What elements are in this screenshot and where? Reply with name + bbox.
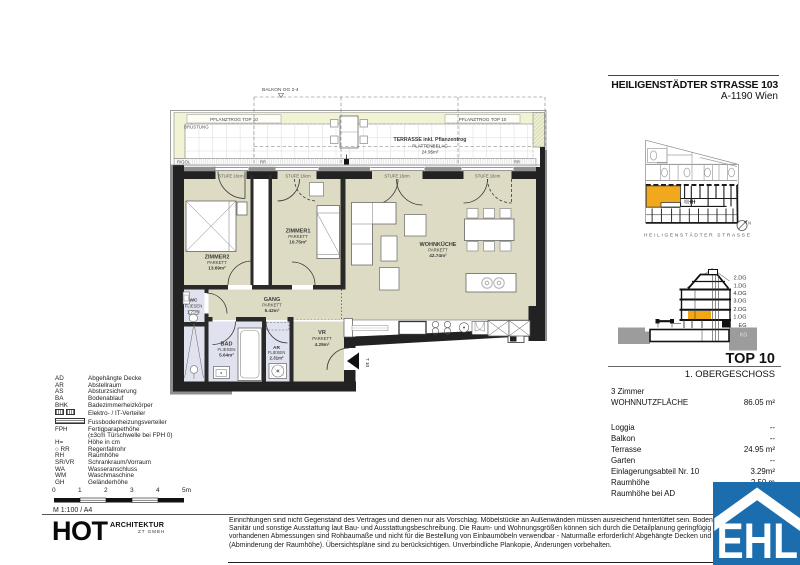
svg-text:4.OG: 4.OG (733, 291, 746, 297)
svg-text:4.29m²: 4.29m² (315, 342, 330, 347)
svg-text:RR: RR (514, 160, 520, 165)
svg-text:4: 4 (156, 487, 160, 494)
svg-text:PFLANZTROG TOP 10: PFLANZTROG TOP 10 (459, 117, 507, 122)
svg-text:STUFE 16cm: STUFE 16cm (475, 174, 501, 179)
svg-text:PARKETT: PARKETT (288, 234, 308, 239)
svg-text:EHL: EHL (716, 513, 797, 565)
svg-text:FLIESEN: FLIESEN (218, 347, 236, 352)
svg-text:5m: 5m (182, 487, 191, 494)
svg-text:3.OG: 3.OG (733, 299, 746, 305)
svg-text:RIGOL: RIGOL (177, 160, 191, 165)
svg-text:N: N (748, 221, 751, 226)
svg-text:T 10: T 10 (365, 358, 370, 368)
svg-text:FLIESEN: FLIESEN (185, 304, 202, 309)
svg-text:1.OG: 1.OG (733, 315, 746, 321)
svg-text:KG: KG (740, 333, 747, 339)
svg-text:STUFE 16cm: STUFE 16cm (384, 174, 410, 179)
svg-text:3: 3 (130, 487, 134, 494)
svg-text:2.31m²: 2.31m² (270, 356, 284, 361)
svg-text:PARKETT: PARKETT (207, 260, 227, 265)
svg-text:HEILIGENSTÄDTER STRASSE: HEILIGENSTÄDTER STRASSE (644, 232, 752, 239)
svg-text:42.74m²: 42.74m² (429, 253, 447, 258)
svg-text:PARKETT: PARKETT (428, 247, 448, 252)
svg-text:FLIESEN: FLIESEN (268, 350, 285, 355)
svg-text:5.64m²: 5.64m² (219, 352, 234, 357)
svg-text:PFLANZTROG TOP 10: PFLANZTROG TOP 10 (210, 117, 258, 122)
svg-text:2.DG: 2.DG (734, 276, 747, 282)
svg-text:PARKETT: PARKETT (262, 302, 282, 307)
svg-text:STUFE 16cm: STUFE 16cm (285, 174, 311, 179)
svg-text:PLATTENBELAG: PLATTENBELAG (412, 144, 448, 149)
svg-text:PARKETT: PARKETT (312, 336, 332, 341)
svg-text:TERRASSE inkl. Pflanzentrog: TERRASSE inkl. Pflanzentrog (394, 137, 467, 143)
svg-text:1.DG: 1.DG (734, 284, 747, 290)
svg-text:1: 1 (78, 487, 82, 494)
svg-text:BRÜSTUNG: BRÜSTUNG (184, 125, 209, 130)
svg-text:2.OG: 2.OG (733, 307, 746, 313)
svg-text:10.75m²: 10.75m² (289, 239, 307, 244)
svg-text:1.21m²: 1.21m² (187, 310, 201, 315)
svg-text:BALKON OG 2-4: BALKON OG 2-4 (262, 87, 299, 93)
svg-text:5.42m²: 5.42m² (265, 308, 280, 313)
svg-text:EG: EG (739, 323, 747, 329)
svg-text:0: 0 (52, 487, 56, 494)
svg-text:2: 2 (104, 487, 108, 494)
svg-text:24.95m²: 24.95m² (422, 150, 439, 155)
svg-text:13.69m²: 13.69m² (208, 265, 226, 270)
svg-text:RR: RR (260, 160, 266, 165)
svg-text:STUFE 16cm: STUFE 16cm (218, 174, 244, 179)
